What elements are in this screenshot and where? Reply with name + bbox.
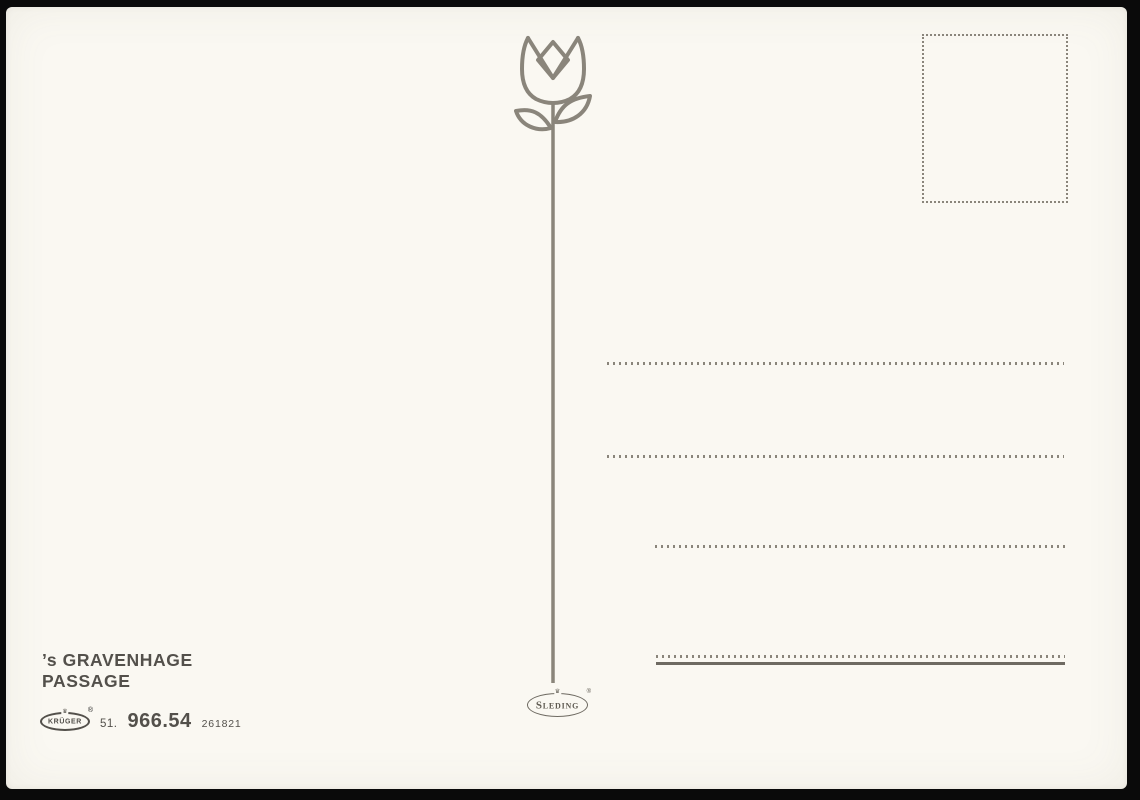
- stamp-box: [922, 34, 1068, 203]
- sleding-brand-text: Sleding: [536, 700, 579, 712]
- caption-line-2: PASSAGE: [42, 671, 193, 692]
- address-line-4: [656, 655, 1065, 658]
- registered-trademark-icon: ®: [88, 707, 93, 714]
- code-suffix: 261821: [202, 718, 242, 730]
- tulip-right-leaf: [555, 96, 590, 122]
- postcard-back: ’s GRAVENHAGE PASSAGE ♛ KRÜGER ® 51. 966…: [6, 7, 1127, 789]
- tulip-left-leaf: [516, 110, 551, 129]
- code-prefix: 51.: [100, 718, 118, 730]
- tulip-icon: [505, 33, 601, 685]
- publisher-row: ♛ KRÜGER ® 51. 966.54 261821: [40, 710, 242, 733]
- code-main: 966.54: [128, 710, 192, 733]
- address-line-1: [607, 362, 1064, 365]
- tulip-cup: [522, 38, 584, 103]
- crown-icon: ♛: [61, 709, 68, 715]
- address-line-2: [607, 455, 1064, 458]
- caption: ’s GRAVENHAGE PASSAGE: [42, 650, 193, 692]
- caption-line-1: ’s GRAVENHAGE: [42, 650, 193, 671]
- registered-trademark-icon: ®: [587, 689, 591, 695]
- address-line-3: [655, 545, 1065, 548]
- kruger-logo: ♛ KRÜGER ®: [40, 712, 90, 731]
- address-base-line: [656, 662, 1065, 665]
- sleding-logo: ♛ Sleding ®: [527, 693, 588, 717]
- kruger-brand-text: KRÜGER: [48, 719, 82, 726]
- crown-icon: ♛: [554, 689, 561, 695]
